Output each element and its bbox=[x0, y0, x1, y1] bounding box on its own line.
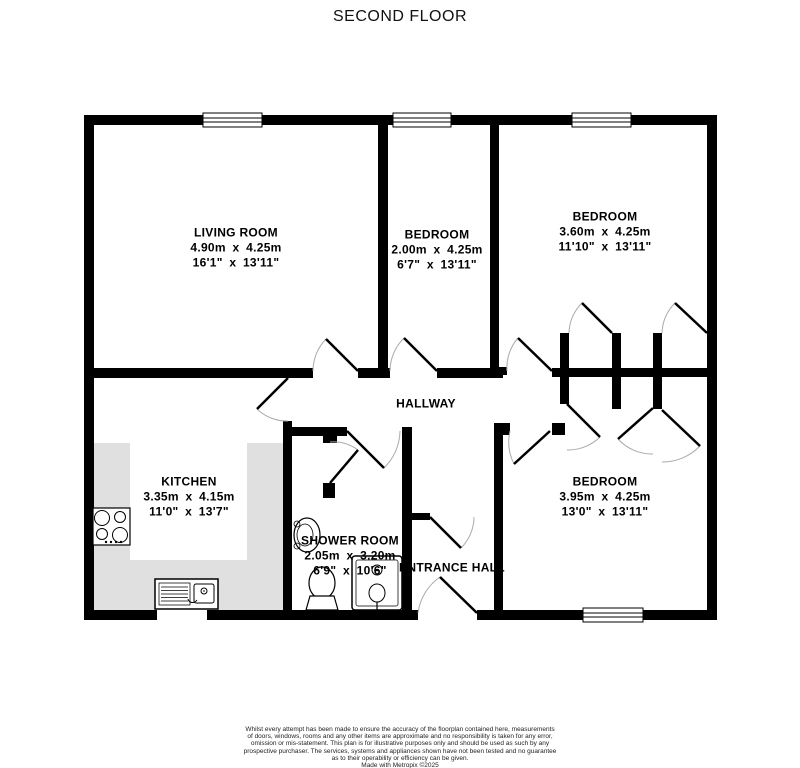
room-name: LIVING ROOM bbox=[190, 226, 281, 241]
door-arc bbox=[313, 339, 326, 371]
closet-stub bbox=[653, 377, 662, 409]
wall-living-bedroom bbox=[378, 125, 388, 373]
wall-hallway-top-mid bbox=[358, 368, 390, 378]
room-name: BEDROOM bbox=[391, 228, 482, 243]
door-arc bbox=[390, 338, 404, 371]
room-dims-imperial: 16'1" x 13'11" bbox=[190, 256, 281, 271]
front-door-opening bbox=[418, 607, 477, 623]
wall-shower-top bbox=[292, 427, 347, 436]
room-label-bedroom-top-right: BEDROOM 3.60m x 4.25m 11'10" x 13'11" bbox=[559, 210, 652, 255]
door-arc bbox=[662, 446, 700, 462]
door-arc bbox=[618, 439, 653, 454]
room-dims-metric: 2.00m x 4.25m bbox=[391, 243, 482, 258]
door-arc bbox=[257, 409, 288, 421]
door-arc bbox=[509, 431, 514, 464]
wall-shower-stub bbox=[323, 483, 335, 498]
room-dims-metric: 2.05m x 3.20m bbox=[301, 549, 399, 564]
room-name: HALLWAY bbox=[396, 397, 456, 412]
door-leaf bbox=[567, 404, 600, 437]
footer: Whilst every attempt has been made to en… bbox=[0, 726, 800, 768]
room-name: BEDROOM bbox=[559, 475, 650, 490]
wall-bedroom-corner bbox=[494, 423, 510, 435]
door-arc bbox=[567, 437, 600, 450]
door-arc bbox=[662, 303, 675, 333]
door-leaf bbox=[662, 410, 700, 446]
wall-entrance-stub bbox=[412, 513, 430, 520]
room-dims-metric: 3.95m x 4.25m bbox=[559, 490, 650, 505]
room-dims-imperial: 11'10" x 13'11" bbox=[559, 240, 652, 255]
room-label-kitchen: KITCHEN 3.35m x 4.15m 11'0" x 13'7" bbox=[143, 475, 234, 520]
floorplan-canvas bbox=[0, 0, 800, 768]
disclaimer-text: Whilst every attempt has been made to en… bbox=[0, 726, 800, 762]
wall-hallway-top-right bbox=[437, 368, 503, 378]
room-dims-imperial: 6'7" x 13'11" bbox=[391, 258, 482, 273]
door-leaf bbox=[326, 339, 358, 371]
wall-kitchen-shower bbox=[283, 421, 292, 610]
window bbox=[583, 608, 643, 622]
wall-bedroom-stub bbox=[552, 423, 565, 435]
wall-hallway-top-left bbox=[84, 368, 313, 378]
kitchen-sink-icon bbox=[155, 579, 218, 609]
window bbox=[203, 113, 262, 127]
room-label-bedroom-bottom-right: BEDROOM 3.95m x 4.25m 13'0" x 13'11" bbox=[559, 475, 650, 520]
room-label-hallway: HALLWAY bbox=[396, 397, 456, 412]
credit-text: Made with Metropix ©2025 bbox=[0, 762, 800, 768]
room-dims-metric: 3.35m x 4.15m bbox=[143, 490, 234, 505]
room-label-living-room: LIVING ROOM 4.90m x 4.25m 16'1" x 13'11" bbox=[190, 226, 281, 271]
room-dims-imperial: 6'9" x 10'6" bbox=[301, 564, 399, 579]
closet-stub bbox=[612, 333, 621, 377]
door-leaf bbox=[618, 408, 653, 439]
window bbox=[572, 113, 631, 127]
window bbox=[393, 113, 451, 127]
wall-bedroom-bedroom bbox=[490, 125, 499, 373]
room-label-bedroom-middle: BEDROOM 2.00m x 4.25m 6'7" x 13'11" bbox=[391, 228, 482, 273]
closet-stub bbox=[560, 377, 569, 404]
door-arc bbox=[569, 303, 582, 333]
room-dims-metric: 4.90m x 4.25m bbox=[190, 241, 281, 256]
door-arc bbox=[507, 338, 518, 371]
walls bbox=[84, 115, 717, 620]
closet-stub bbox=[653, 333, 662, 377]
room-label-entrance-hall: ENTRANCE HALL bbox=[399, 561, 505, 576]
door-arc bbox=[330, 442, 358, 450]
wall-entrance-bedroom bbox=[494, 427, 503, 613]
wall-outer-right bbox=[707, 115, 717, 620]
door-arc bbox=[461, 517, 474, 548]
wall-shower-entrance bbox=[402, 427, 412, 613]
closet-stub bbox=[612, 377, 621, 409]
door-leaf bbox=[514, 431, 550, 464]
door-leaf bbox=[518, 338, 552, 371]
room-name: SHOWER ROOM bbox=[301, 534, 399, 549]
door-leaf bbox=[347, 431, 384, 468]
door-leaf bbox=[430, 517, 461, 548]
wall-closet bbox=[552, 368, 707, 377]
room-dims-imperial: 13'0" x 13'11" bbox=[559, 505, 650, 520]
door-leaf bbox=[675, 303, 707, 333]
floorplan-page: SECOND FLOOR bbox=[0, 0, 800, 768]
room-dims-imperial: 11'0" x 13'7" bbox=[143, 505, 234, 520]
door-leaf bbox=[404, 338, 437, 371]
door-leaf bbox=[257, 378, 288, 409]
room-dims-metric: 3.60m x 4.25m bbox=[559, 225, 652, 240]
room-name: KITCHEN bbox=[143, 475, 234, 490]
room-name: ENTRANCE HALL bbox=[399, 561, 505, 576]
door-arc bbox=[384, 431, 400, 468]
hob-icon bbox=[93, 508, 130, 545]
room-label-shower-room: SHOWER ROOM 2.05m x 3.20m 6'9" x 10'6" bbox=[301, 534, 399, 579]
closet-stub bbox=[560, 333, 569, 377]
door-leaf bbox=[582, 303, 612, 333]
room-name: BEDROOM bbox=[559, 210, 652, 225]
door-leaf bbox=[330, 450, 358, 483]
